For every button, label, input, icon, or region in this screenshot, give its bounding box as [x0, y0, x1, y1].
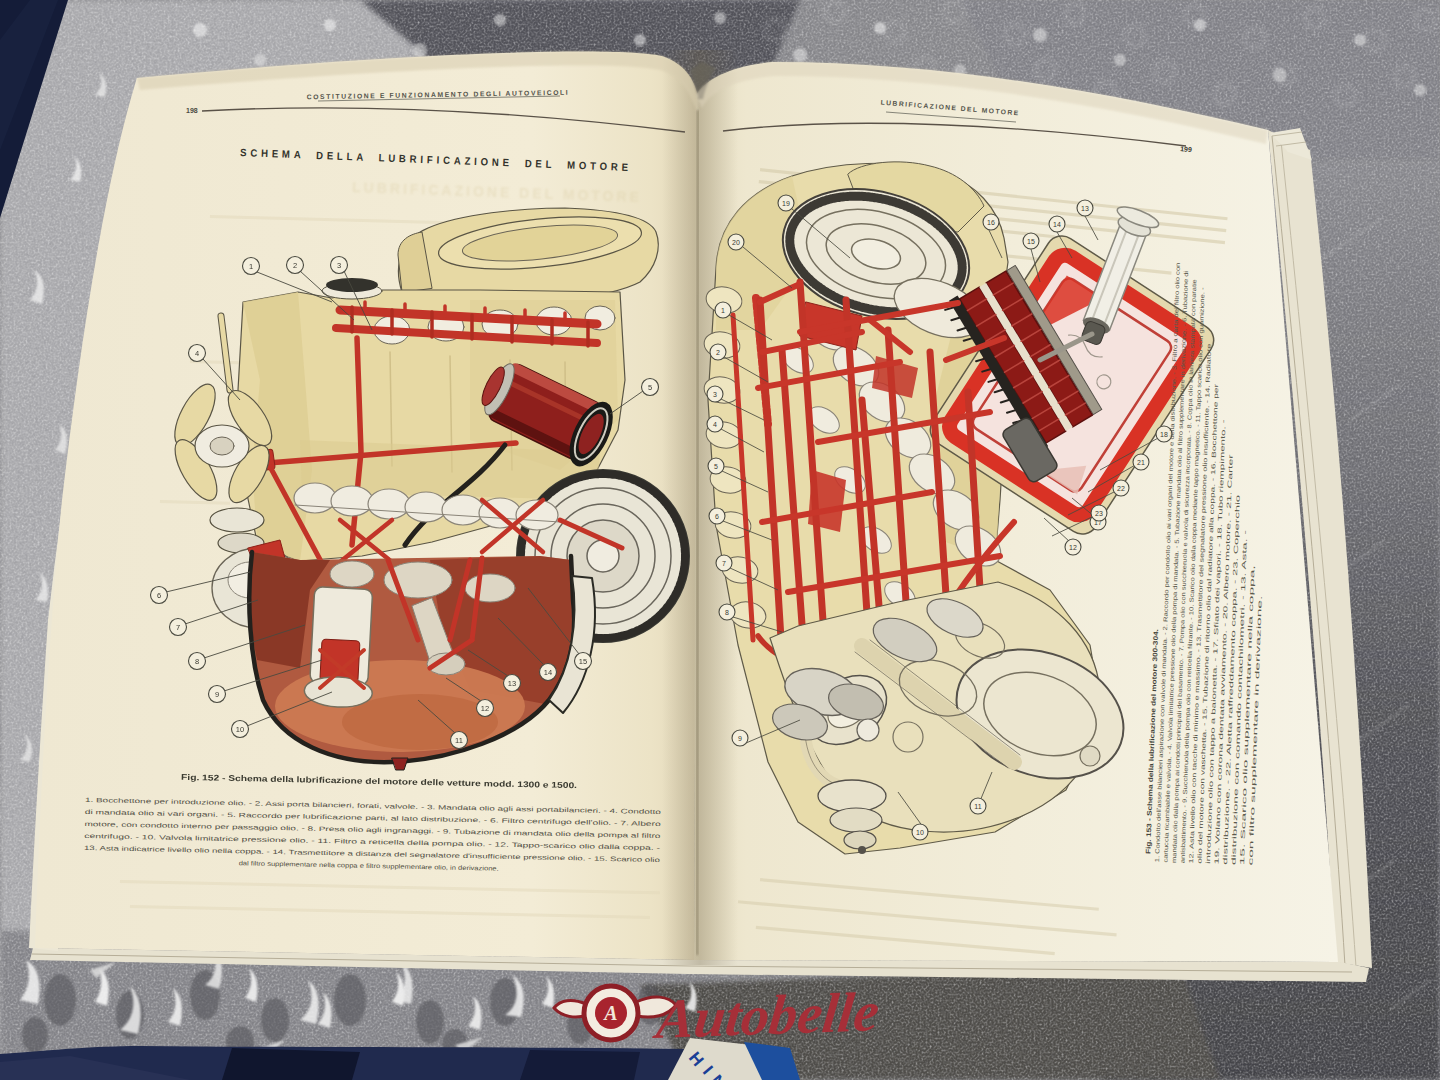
svg-text:2: 2: [293, 261, 297, 270]
svg-text:18: 18: [1160, 431, 1168, 438]
svg-text:5: 5: [648, 383, 652, 392]
svg-text:6: 6: [157, 591, 161, 600]
svg-text:11: 11: [455, 736, 463, 745]
svg-text:198: 198: [186, 107, 198, 114]
svg-text:16: 16: [987, 219, 995, 226]
svg-text:4: 4: [195, 349, 199, 358]
svg-text:10: 10: [916, 829, 924, 836]
svg-text:13: 13: [508, 679, 516, 688]
svg-text:14: 14: [1053, 221, 1061, 228]
svg-text:199: 199: [1180, 145, 1192, 153]
svg-text:7: 7: [176, 623, 180, 632]
svg-text:21: 21: [1137, 459, 1145, 466]
svg-text:22: 22: [1117, 485, 1125, 492]
svg-text:8: 8: [195, 657, 199, 666]
svg-text:10: 10: [236, 725, 244, 734]
svg-text:23: 23: [1095, 510, 1103, 517]
svg-text:3: 3: [713, 391, 717, 398]
svg-text:15: 15: [1027, 238, 1035, 245]
svg-text:1: 1: [721, 307, 725, 314]
svg-text:13: 13: [1081, 205, 1089, 212]
svg-text:8: 8: [725, 609, 729, 616]
svg-text:11: 11: [974, 803, 981, 810]
svg-text:19: 19: [782, 200, 790, 207]
svg-text:5: 5: [714, 463, 718, 470]
svg-text:3: 3: [337, 261, 341, 270]
svg-text:12: 12: [1069, 544, 1077, 551]
svg-text:2: 2: [716, 349, 720, 356]
svg-text:20: 20: [732, 239, 740, 246]
svg-text:A: A: [602, 1002, 617, 1024]
svg-text:14: 14: [544, 668, 552, 677]
svg-text:6: 6: [715, 513, 719, 520]
svg-text:12: 12: [481, 704, 489, 713]
svg-text:9: 9: [215, 690, 219, 699]
svg-text:4: 4: [713, 421, 717, 428]
svg-text:7: 7: [722, 560, 726, 567]
svg-text:15: 15: [579, 657, 587, 666]
svg-text:Autobelle: Autobelle: [651, 980, 882, 1050]
svg-text:1: 1: [249, 262, 253, 271]
svg-text:9: 9: [738, 735, 742, 742]
